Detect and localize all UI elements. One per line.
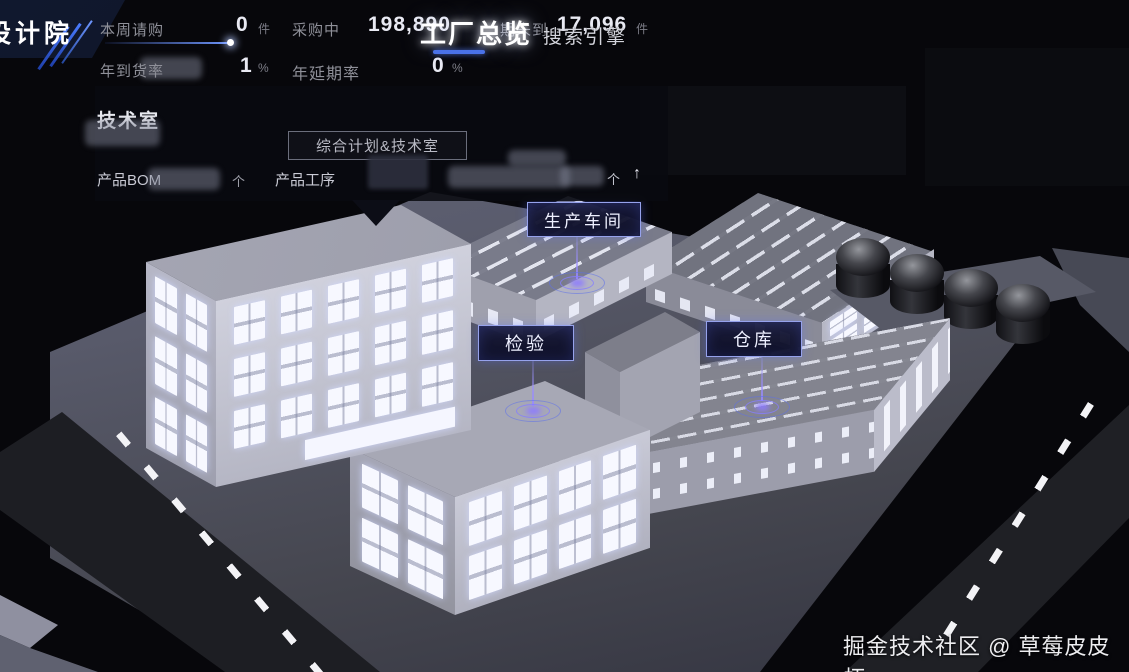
window <box>514 475 547 530</box>
window <box>422 258 453 303</box>
window <box>422 310 453 355</box>
window <box>362 464 398 525</box>
window <box>408 539 444 600</box>
location-marker-warehouse <box>734 396 790 418</box>
background-building-silhouette <box>640 86 906 175</box>
background-building-silhouette <box>925 48 1129 186</box>
location-marker-inspection <box>505 400 561 422</box>
stat-unit: % <box>452 61 463 75</box>
header-accent-dot <box>227 39 234 46</box>
storage-tank[interactable] <box>836 238 890 300</box>
department-box-label: 综合计划&技术室 <box>316 135 439 156</box>
blur-patch <box>448 166 570 188</box>
watermark-text: 掘金技术社区 @ 草莓皮皮虾 <box>843 629 1129 672</box>
stat-value: 0 <box>432 54 445 78</box>
blur-patch <box>560 166 604 186</box>
tank-dome <box>890 254 944 292</box>
blur-patch <box>85 120 160 146</box>
window <box>234 404 265 449</box>
header-accent-line <box>105 42 230 44</box>
tank-dome <box>996 284 1050 322</box>
location-marker-production <box>549 272 605 294</box>
blur-patch <box>368 155 428 189</box>
window <box>328 383 359 428</box>
window <box>281 342 312 387</box>
window <box>328 279 359 324</box>
window <box>469 545 502 600</box>
tooltip-stat1-unit: 个 <box>232 171 245 190</box>
label-inspection[interactable]: 检验 <box>478 325 574 361</box>
window <box>603 499 636 554</box>
tooltip-stat2-unit: 个 <box>607 169 620 188</box>
window <box>328 331 359 376</box>
app-logo-text: 设计院 <box>0 14 73 50</box>
stat-label: 采购中 <box>292 19 340 40</box>
stat-unit: 件 <box>636 20 648 37</box>
tank-dome <box>836 238 890 276</box>
blur-patch <box>148 168 220 190</box>
window <box>375 269 406 314</box>
window <box>375 373 406 418</box>
stat-label: 年延期率 <box>292 60 360 84</box>
window <box>559 460 592 515</box>
trend-up-arrow-icon: ↑ <box>633 165 641 183</box>
office-building-left-wall <box>146 262 216 487</box>
window <box>234 300 265 345</box>
search-engine-menu-item[interactable]: 搜索引擎 <box>543 22 627 49</box>
window <box>559 514 592 569</box>
window <box>408 485 444 546</box>
window <box>155 336 177 395</box>
stat-value: 0 <box>236 13 249 37</box>
page-title-tab[interactable]: 工厂总览 <box>420 14 532 51</box>
window <box>362 518 398 579</box>
leader-line-warehouse <box>761 355 763 401</box>
tooltip-stat2-label: 产品工序 <box>275 169 335 190</box>
label-warehouse[interactable]: 仓库 <box>706 321 802 357</box>
window <box>281 394 312 439</box>
window <box>514 529 547 584</box>
window <box>234 352 265 397</box>
window <box>155 397 177 456</box>
window <box>375 321 406 366</box>
stat-label: 年到货率 <box>100 60 164 81</box>
window <box>186 293 208 352</box>
blur-patch <box>508 150 566 166</box>
leader-line-inspection <box>532 358 534 406</box>
storage-tank[interactable] <box>944 269 998 331</box>
stat-label: 本周请购 <box>100 19 164 40</box>
stat-value: 1 <box>240 54 253 78</box>
tank-dome <box>944 269 998 307</box>
storage-tank[interactable] <box>996 284 1050 346</box>
label-production-workshop[interactable]: 生产车间 <box>527 202 641 237</box>
window <box>603 445 636 500</box>
title-underline <box>433 50 485 54</box>
window <box>155 276 177 335</box>
stat-unit: % <box>258 61 269 75</box>
window <box>422 362 453 407</box>
window <box>186 353 208 412</box>
window <box>186 414 208 473</box>
window <box>469 491 502 546</box>
window <box>281 290 312 335</box>
factory-dashboard: 生产车间 检验 仓库 技术室 综合计划&技术室 产品BOM 个 产品工序 个 ↑… <box>0 0 1129 672</box>
storage-tank[interactable] <box>890 254 944 316</box>
stat-unit: 件 <box>258 20 270 37</box>
